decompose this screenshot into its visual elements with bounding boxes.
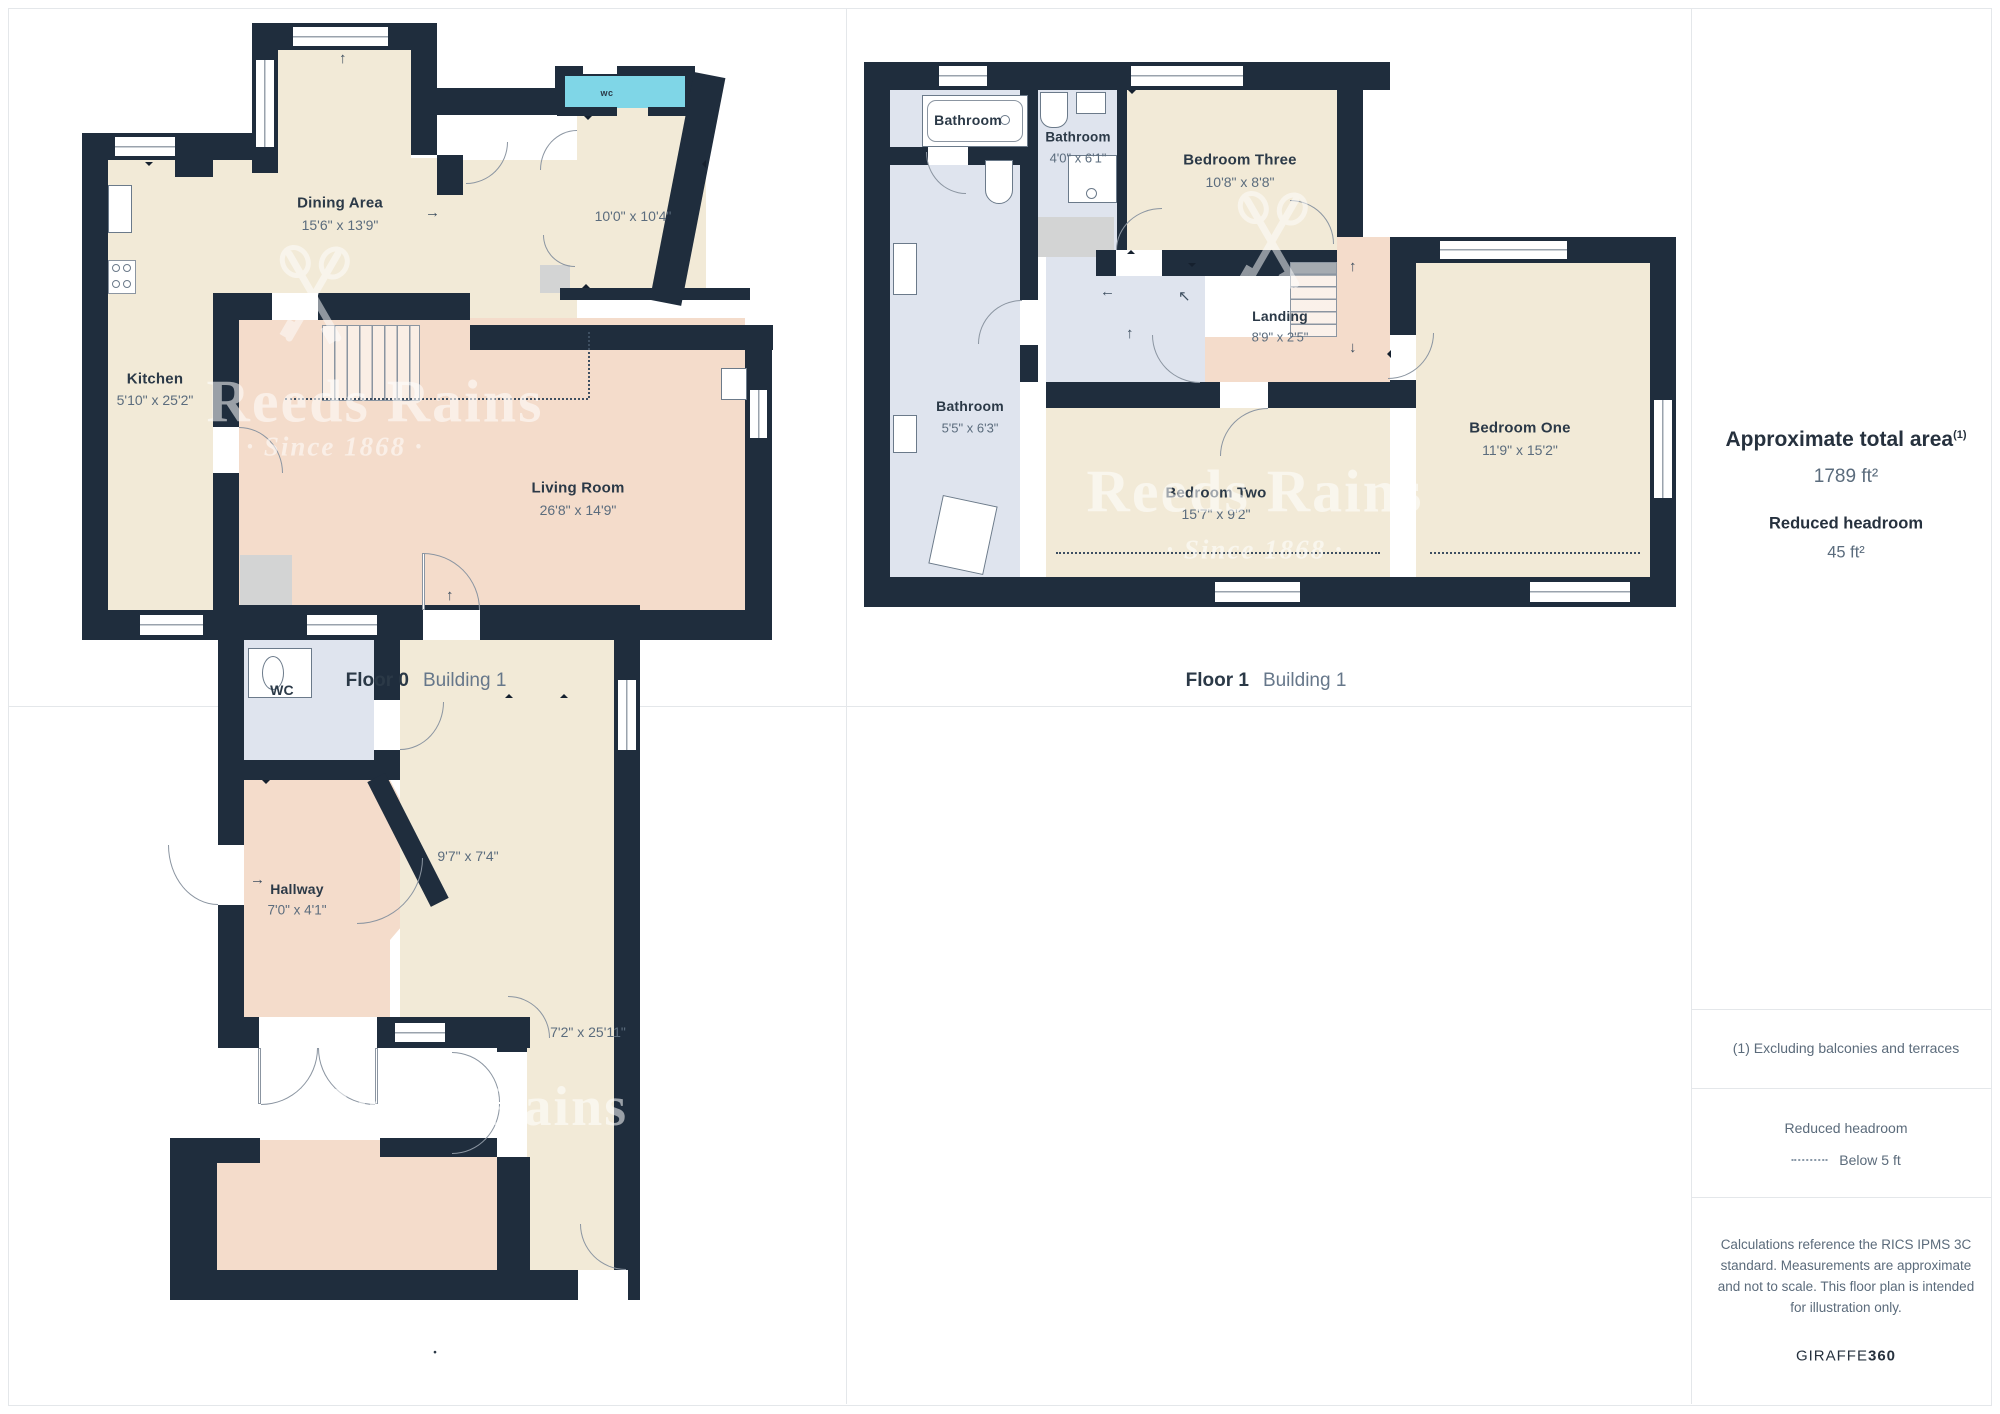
door-marker — [1383, 350, 1391, 358]
door-gap-kitchen-living — [213, 427, 239, 473]
wall — [1046, 382, 1390, 408]
room-living-floor — [239, 318, 745, 613]
door-marker — [560, 690, 568, 698]
sink — [893, 415, 917, 453]
sink — [893, 243, 917, 295]
wall-wc-top — [555, 66, 695, 76]
door-arrow-up-icon: ↑ — [446, 588, 454, 603]
stairs-arrow-down-icon: ↓ — [1349, 340, 1357, 355]
wall — [745, 340, 772, 640]
burner — [123, 264, 131, 272]
window — [1131, 64, 1243, 88]
wall — [374, 605, 400, 780]
door-marker — [262, 780, 270, 788]
wall — [1117, 62, 1127, 250]
room-dims-bed1: 11'9" x 15'2" — [1482, 442, 1558, 458]
room-dims-bed2: 15'7" x 9'2" — [1182, 506, 1251, 522]
door-gap — [1116, 250, 1162, 276]
stairs-arrow-left-icon: ← — [1100, 284, 1115, 299]
room-dims-landing: 8'9" x 2'5" — [1252, 330, 1309, 345]
window — [1652, 400, 1674, 498]
toilet — [1040, 92, 1068, 128]
brand-name: GIRAFFE — [1796, 1348, 1868, 1365]
room-label-wc: wc — [600, 88, 613, 98]
window — [1215, 580, 1300, 604]
legend-label: Below 5 ft — [1839, 1152, 1900, 1168]
door-arrow-right-icon: → — [250, 872, 265, 887]
sidebar-reduced-headroom-value: 45 ft² — [1827, 544, 1865, 563]
door-leaf — [422, 553, 425, 610]
wall — [213, 293, 470, 320]
room-dims-dining: 15'6" x 13'9" — [302, 217, 379, 233]
room-dims-kitchen: 5'10" x 25'2" — [117, 392, 194, 408]
floorplan-sheet: ↑ → ↑ Dining Area 15'6" x 13'9" 10'0" x … — [0, 0, 2000, 1414]
wall — [437, 155, 463, 195]
gray-chimney — [240, 555, 292, 610]
door-marker — [1128, 90, 1136, 98]
room-label-hallway: Hallway — [270, 881, 324, 897]
burner — [112, 280, 120, 288]
wall — [244, 760, 374, 780]
burner — [112, 264, 120, 272]
room-label-bed1: Bedroom One — [1469, 420, 1570, 437]
sidebar-area-title: Approximate total area(1) — [1725, 428, 1966, 452]
sidebar-legend-title: Reduced headroom — [1785, 1120, 1908, 1136]
room-wc-floor — [565, 74, 685, 108]
door-gap-double — [259, 1017, 377, 1048]
door-arrow-up-icon: ↑ — [339, 51, 347, 66]
room-label-bathroom-small: Bathroom — [1045, 130, 1110, 145]
sidebar-disclaimer: Calculations reference the RICS IPMS 3C … — [1710, 1235, 1982, 1319]
room-dims-hallway: 7'0" x 4'1" — [267, 903, 326, 918]
room-dims-bed3: 10'8" x 8'8" — [1206, 174, 1275, 190]
caption-building-name: Building 1 — [423, 670, 506, 691]
sidebar-footnote: (1) Excluding balconies and terraces — [1733, 1040, 1959, 1056]
window-wc — [583, 66, 617, 74]
burner — [123, 280, 131, 288]
room-label-bed3: Bedroom Three — [1183, 152, 1296, 169]
door-marker — [1188, 263, 1196, 271]
room-dims-corridor: 7'2" x 25'11" — [550, 1024, 626, 1040]
reduced-headroom-dotted-line — [1056, 552, 1380, 554]
window — [293, 25, 388, 48]
window — [939, 64, 987, 88]
room-dims-bathroom-small: 4'0" x 6'1" — [1050, 151, 1107, 166]
door-gap-entrance-b — [218, 845, 244, 905]
door-marker — [145, 162, 153, 170]
door-gap — [1020, 300, 1038, 345]
brand-suffix: 360 — [1868, 1348, 1896, 1365]
wall — [170, 1138, 260, 1163]
wall — [1337, 62, 1363, 237]
caption-floor-name: Floor 0 — [346, 670, 409, 691]
door-marker — [1127, 246, 1135, 254]
sidebar-divider-2 — [1691, 1088, 1992, 1089]
caption-floor0: Floor 0Building 1 — [346, 670, 507, 692]
wall — [217, 1270, 578, 1300]
stairs-floor1 — [1290, 262, 1337, 337]
stairs-arrow-upleft-icon: ↖ — [1178, 289, 1191, 304]
room-label-bed2: Bedroom Two — [1165, 485, 1266, 502]
door-gap-entrance — [423, 610, 480, 640]
wall — [175, 133, 213, 177]
caption-dot: • — [433, 1348, 437, 1359]
door-gap — [1220, 382, 1268, 408]
room-label-living: Living Room — [531, 480, 624, 497]
caption-floor-name: Floor 1 — [1186, 670, 1249, 691]
room-dims-bathroom-left: 5'5" x 6'3" — [942, 421, 999, 436]
sidebar-legend-row: Below 5 ft — [1791, 1152, 1900, 1168]
window — [1530, 580, 1630, 604]
room-label-bathroom-left: Bathroom — [936, 398, 1004, 414]
wall — [497, 1157, 530, 1270]
reduced-headroom-dotted-line — [588, 332, 590, 398]
door-gap-corridor-exit — [578, 1270, 628, 1300]
window — [616, 680, 638, 750]
area-title-footnote: (1) — [1953, 429, 1966, 441]
door-marker — [698, 160, 706, 168]
window — [140, 613, 203, 637]
room-label-bathroom-top: Bathroom — [934, 112, 1002, 128]
wall — [437, 88, 565, 115]
room-label-wc-b: WC — [270, 682, 294, 698]
caption-floor1: Floor 1Building 1 — [1186, 670, 1347, 692]
sidebar-divider-3 — [1691, 1197, 1992, 1198]
room-label-dining: Dining Area — [297, 195, 383, 212]
shower-drain — [1086, 188, 1097, 199]
reduced-headroom-dotted-line — [1430, 552, 1640, 554]
wall — [628, 1270, 640, 1300]
room-dims-living: 26'8" x 14'9" — [540, 502, 617, 518]
window — [1440, 239, 1567, 261]
reduced-headroom-dotted-line — [285, 398, 588, 400]
door-arrow-right-icon: → — [425, 205, 440, 220]
sidebar-reduced-headroom-title: Reduced headroom — [1769, 515, 1923, 534]
sidebar-area-value: 1789 ft² — [1814, 466, 1878, 488]
door-gap-wc-b — [374, 700, 400, 750]
wall — [411, 23, 437, 155]
window — [748, 390, 769, 438]
door-leaf — [375, 1048, 378, 1104]
sidebar-divider-1 — [1691, 1009, 1992, 1010]
window — [115, 135, 175, 158]
toilet — [985, 160, 1013, 204]
door-gap-dining-living — [272, 293, 318, 320]
wall — [82, 133, 108, 620]
wall — [560, 288, 750, 300]
window — [307, 613, 377, 637]
caption-building-name: Building 1 — [1263, 670, 1346, 691]
divider-vertical-sidebar — [1691, 8, 1692, 1404]
door-marker — [584, 116, 592, 124]
window — [395, 1021, 445, 1044]
room-label-landing: Landing — [1252, 308, 1308, 324]
stairs-arrow-up-icon: ↑ — [1349, 259, 1357, 274]
window — [254, 60, 276, 147]
fireplace — [721, 368, 747, 400]
door-marker — [582, 280, 590, 288]
wall — [218, 605, 244, 1048]
sink-fixture — [108, 185, 132, 233]
wall — [864, 62, 890, 607]
room-dims-10x10: 10'0" x 10'4" — [595, 208, 672, 224]
dotted-line-swatch — [1791, 1159, 1827, 1163]
sink — [1076, 92, 1106, 114]
room-label-kitchen: Kitchen — [127, 371, 183, 388]
giraffe360-logo: GIRAFFE360 — [1796, 1348, 1896, 1365]
stairs — [322, 325, 420, 401]
room-dims-97: 9'7" x 7'4" — [437, 848, 498, 864]
area-title-text: Approximate total area — [1725, 428, 1953, 451]
wall — [470, 325, 773, 350]
wall — [557, 107, 617, 116]
room-dining-bay-floor — [278, 50, 411, 165]
stairs-arrow-up-icon: ↑ — [1126, 326, 1134, 341]
